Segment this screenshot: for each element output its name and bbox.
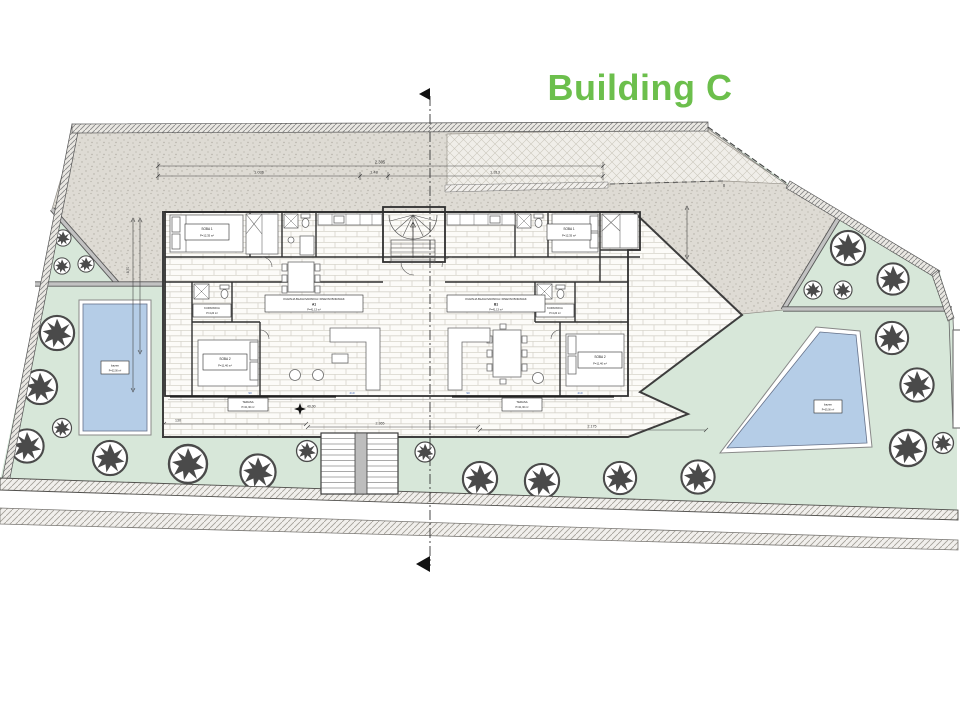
room-area: P=21,30 m² [242, 406, 255, 409]
room-area: P=41,13 m² [307, 308, 321, 312]
section-marker-top [419, 88, 430, 100]
tree-icon [525, 464, 559, 498]
tree-icon [240, 454, 275, 489]
dim-left-v: 8,70 [126, 267, 130, 274]
room-area: P=11,40 m² [218, 364, 232, 368]
room-area: P=11,40 m² [593, 362, 607, 366]
dim-bottom-c: 2.175 [588, 425, 597, 429]
dim-bottom-b: 2.365 [376, 422, 385, 426]
tree-icon [78, 256, 94, 272]
tree-icon [53, 419, 72, 438]
tree-icon [54, 258, 70, 274]
dim-top-c: 1.313 [490, 170, 501, 175]
embankment-area [447, 129, 786, 190]
dim-top-b: 1.48 [370, 170, 379, 175]
window-tag: 210 [349, 391, 354, 395]
room-area: P=4,20 m² [206, 312, 218, 315]
window-tag: 90 [466, 391, 470, 395]
dim-top-total: 2.305 [375, 160, 386, 165]
room-label: TERASA [242, 400, 253, 404]
tree-icon [40, 316, 74, 350]
room-label: KUHINJA BLAGOVAONICA I DNEVNI BORAVAK [283, 297, 344, 301]
room-area: P=4,20 m² [549, 312, 561, 315]
tree-icon [604, 462, 636, 494]
room-label: KUHINJA BLAGOVAONICA I DNEVNI BORAVAK [465, 297, 526, 301]
room-label: SOBA 2 [219, 357, 231, 361]
pool-label: bazen [111, 364, 120, 368]
tree-icon [877, 263, 908, 294]
tree-icon [900, 368, 933, 401]
room-area: P=21,30 m² [516, 406, 529, 409]
section-marker-bottom [416, 556, 430, 572]
dim-top-a: 1.036 [254, 170, 265, 175]
site-plan: Building C [0, 0, 960, 707]
tree-icon [415, 442, 435, 462]
room-label: SOBA 1 [563, 227, 575, 231]
tree-icon [933, 433, 954, 454]
unit-number: B1 [494, 303, 498, 307]
room-area: P=41,13 m² [489, 308, 503, 312]
window-tag: 210 [577, 391, 582, 395]
page-title: Building C [548, 67, 733, 108]
tree-icon [93, 441, 127, 475]
tree-icon [876, 322, 908, 354]
tree-icon [463, 462, 497, 496]
external-stairs [321, 433, 398, 494]
tree-icon [834, 281, 852, 299]
unit-number: A1 [312, 303, 316, 307]
pool-label: bazen [824, 403, 833, 407]
room-label: SOBA 2 [594, 355, 606, 359]
dim-bottom-a: 130 [175, 419, 181, 423]
tree-icon [681, 460, 714, 493]
pool-area: P=32,00 m² [109, 370, 122, 373]
room-area: P=12,35 m² [562, 234, 576, 238]
tree-icon [804, 281, 822, 299]
room-label: TERASA [516, 400, 527, 404]
room-label: KUPAONICA [204, 306, 220, 310]
tree-icon [831, 231, 865, 265]
room-label: SOBA 1 [201, 227, 213, 231]
pool-area: P=35,00 m² [822, 409, 835, 412]
room-label: KUPAONICA [547, 306, 563, 310]
room-area: P=12,35 m² [200, 234, 214, 238]
tree-icon [169, 445, 207, 483]
window-tag: 90 [248, 391, 252, 395]
tree-icon [297, 441, 318, 462]
spot-elevation-value: 40,00 [307, 405, 316, 409]
tree-icon [890, 430, 926, 466]
